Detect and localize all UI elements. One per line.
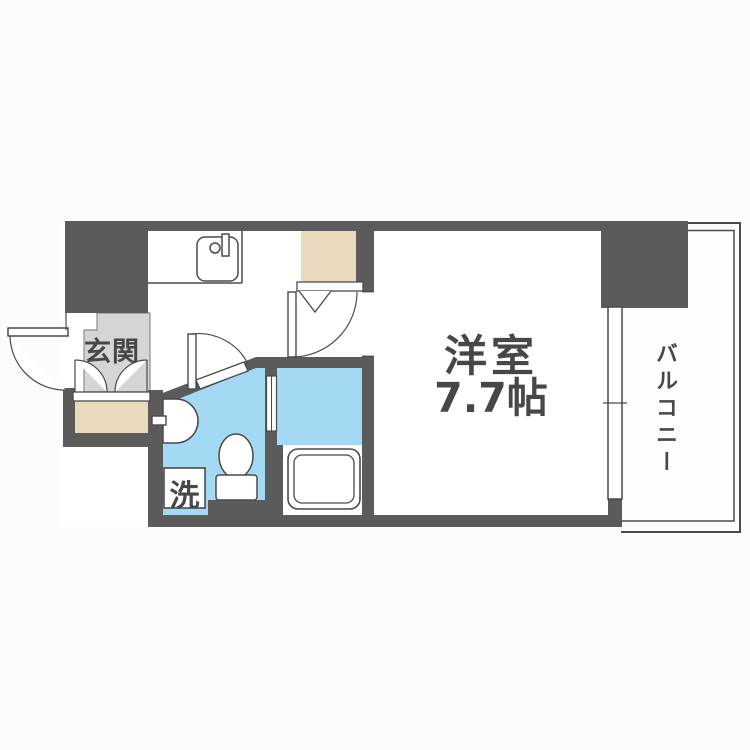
wall-under-toilet [208, 500, 267, 527]
entrance-closet-threshold [73, 392, 150, 401]
laundry-label: 洗 [164, 471, 205, 515]
closet-entrance [75, 398, 150, 433]
entrance-label: 玄関 [74, 330, 150, 369]
toilet-bowl-icon [219, 434, 253, 478]
washbasin-faucet-icon [152, 416, 166, 425]
sink-drain-icon [210, 243, 220, 253]
wall-bath-top [256, 357, 374, 368]
washroom-door-leaf [188, 334, 196, 389]
bathroom-floor [277, 368, 364, 445]
floorplan-drawing [0, 0, 750, 750]
wall-center-lower [362, 356, 374, 516]
closet-upper [301, 231, 360, 282]
entry-door-arc [10, 336, 66, 390]
wall-window-sill-block [608, 498, 622, 527]
toilet-tank-icon [216, 475, 257, 500]
sink-faucet-icon [222, 234, 229, 256]
upper-closet-threshold [297, 282, 363, 291]
room-doorway-gap [362, 291, 374, 357]
wall-center-upper [356, 221, 374, 291]
bathtub-inner [294, 455, 354, 503]
wall-tubroom-left [265, 445, 283, 527]
entry-door-leaf [8, 328, 68, 336]
main-room-size-label: 7.7帖 [400, 364, 582, 424]
wall-top [67, 221, 609, 231]
wall-washroom-left [148, 390, 163, 527]
wall-topleft-block [65, 221, 148, 313]
balcony-label: バルコニー [648, 342, 680, 477]
room-door-leaf [288, 292, 296, 357]
floorplan-page: { "plan": { "type": "japanese-apartment-… [0, 0, 750, 750]
wall-right-block [601, 221, 688, 308]
